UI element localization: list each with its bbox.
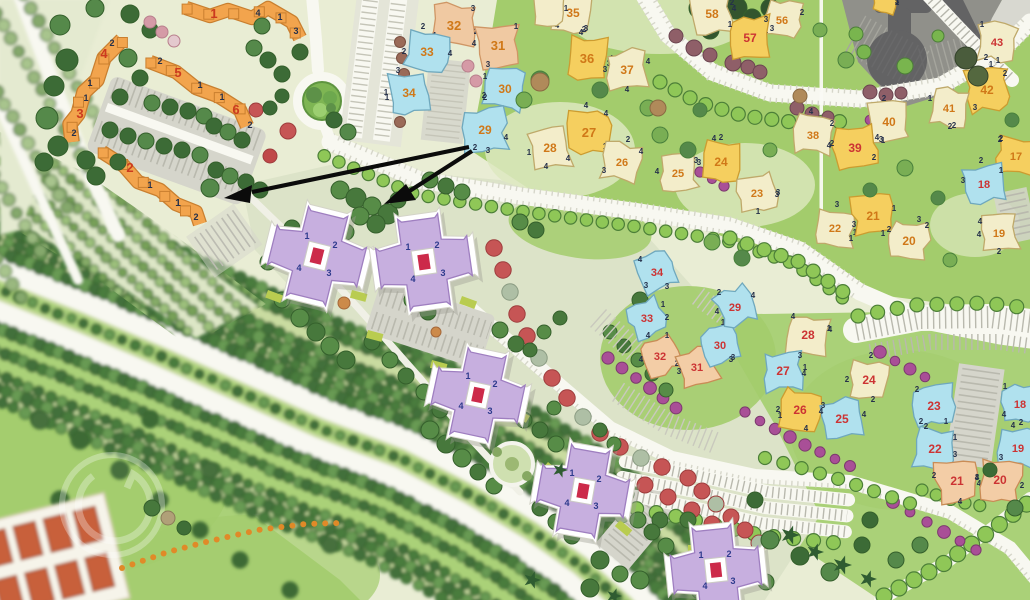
svg-text:2: 2 — [952, 121, 957, 130]
svg-text:36: 36 — [580, 51, 594, 66]
svg-text:4: 4 — [715, 307, 720, 316]
svg-text:3: 3 — [326, 268, 331, 278]
svg-text:3: 3 — [798, 351, 803, 360]
svg-text:3: 3 — [593, 501, 598, 511]
svg-text:1: 1 — [665, 331, 670, 340]
svg-text:32: 32 — [447, 18, 461, 33]
svg-text:1: 1 — [698, 550, 703, 560]
svg-text:43: 43 — [991, 37, 1003, 49]
svg-text:2: 2 — [421, 22, 426, 31]
svg-text:1: 1 — [527, 148, 532, 157]
svg-text:1: 1 — [385, 93, 390, 102]
svg-text:34: 34 — [402, 86, 416, 100]
svg-text:2: 2 — [845, 375, 850, 384]
svg-text:2: 2 — [247, 120, 252, 130]
svg-text:3: 3 — [697, 158, 702, 167]
svg-text:4: 4 — [978, 217, 983, 226]
svg-text:2: 2 — [882, 94, 887, 103]
svg-text:1: 1 — [569, 468, 574, 478]
svg-text:2: 2 — [925, 221, 930, 230]
svg-text:4: 4 — [504, 133, 509, 142]
svg-text:2: 2 — [998, 135, 1003, 144]
svg-text:2: 2 — [402, 47, 407, 56]
svg-text:3: 3 — [999, 453, 1004, 462]
svg-text:1: 1 — [210, 6, 217, 21]
svg-text:2: 2 — [193, 212, 198, 222]
svg-text:25: 25 — [672, 168, 684, 180]
svg-text:21: 21 — [950, 474, 964, 488]
svg-text:4: 4 — [448, 49, 453, 58]
svg-text:4: 4 — [564, 498, 569, 508]
svg-text:24: 24 — [862, 373, 876, 387]
svg-text:1: 1 — [827, 324, 832, 333]
svg-text:3: 3 — [895, 0, 900, 6]
svg-text:4: 4 — [655, 167, 660, 176]
svg-text:3: 3 — [677, 367, 682, 376]
svg-text:1: 1 — [175, 198, 181, 209]
svg-text:3: 3 — [730, 576, 735, 586]
svg-text:35: 35 — [566, 6, 580, 20]
svg-text:4: 4 — [809, 107, 814, 116]
svg-text:3: 3 — [471, 4, 476, 13]
svg-text:3: 3 — [487, 406, 492, 416]
svg-text:1: 1 — [778, 411, 783, 420]
svg-text:4: 4 — [639, 147, 644, 156]
svg-text:2: 2 — [109, 38, 114, 48]
svg-text:4: 4 — [472, 39, 477, 48]
svg-text:4: 4 — [410, 274, 415, 284]
svg-text:4: 4 — [875, 133, 880, 142]
svg-text:20: 20 — [902, 234, 916, 248]
svg-text:4: 4 — [638, 255, 643, 264]
svg-text:2: 2 — [932, 471, 937, 480]
svg-text:17: 17 — [1010, 151, 1022, 163]
svg-text:1: 1 — [881, 229, 886, 238]
svg-text:2: 2 — [1003, 69, 1008, 78]
svg-text:3: 3 — [961, 176, 966, 185]
svg-text:30: 30 — [498, 82, 512, 96]
svg-text:4: 4 — [804, 424, 809, 433]
svg-text:18: 18 — [1014, 399, 1026, 411]
svg-text:1: 1 — [197, 80, 202, 90]
svg-text:4: 4 — [802, 369, 807, 378]
svg-text:4: 4 — [791, 312, 796, 321]
svg-text:2: 2 — [979, 156, 984, 165]
svg-text:1: 1 — [756, 207, 761, 216]
svg-text:4: 4 — [566, 154, 571, 163]
svg-text:2: 2 — [1019, 418, 1024, 427]
svg-text:6: 6 — [232, 102, 239, 117]
svg-text:4: 4 — [604, 109, 609, 118]
svg-text:2: 2 — [332, 240, 337, 250]
svg-text:19: 19 — [1012, 443, 1024, 455]
svg-text:2: 2 — [434, 240, 439, 250]
svg-text:2: 2 — [872, 153, 877, 162]
svg-text:27: 27 — [776, 364, 790, 378]
svg-text:1: 1 — [87, 78, 92, 88]
svg-text:4: 4 — [255, 8, 260, 18]
svg-text:4: 4 — [751, 291, 756, 300]
svg-text:1: 1 — [999, 166, 1004, 175]
svg-text:1: 1 — [483, 72, 488, 81]
svg-text:1: 1 — [405, 242, 410, 252]
svg-text:3: 3 — [76, 106, 83, 121]
svg-text:1: 1 — [928, 94, 933, 103]
svg-text:34: 34 — [651, 267, 664, 279]
svg-text:31: 31 — [691, 362, 703, 374]
svg-text:4: 4 — [712, 134, 717, 143]
svg-text:3: 3 — [917, 215, 922, 224]
svg-text:3: 3 — [396, 66, 401, 75]
svg-text:3: 3 — [644, 281, 649, 290]
svg-text:21: 21 — [866, 209, 880, 223]
svg-text:1: 1 — [892, 204, 897, 213]
svg-text:18: 18 — [978, 179, 990, 191]
svg-text:38: 38 — [807, 130, 819, 142]
svg-text:3: 3 — [953, 450, 958, 459]
svg-text:1: 1 — [881, 136, 886, 145]
svg-text:41: 41 — [943, 103, 955, 115]
svg-text:4: 4 — [458, 401, 463, 411]
svg-text:4: 4 — [977, 230, 982, 239]
svg-text:56: 56 — [776, 15, 788, 27]
svg-text:1: 1 — [83, 93, 88, 103]
svg-text:33: 33 — [641, 313, 653, 325]
svg-text:4: 4 — [646, 331, 651, 340]
svg-text:37: 37 — [620, 63, 634, 77]
svg-text:2: 2 — [1020, 481, 1025, 490]
svg-text:2: 2 — [483, 93, 488, 102]
svg-text:1: 1 — [219, 92, 224, 102]
svg-text:30: 30 — [714, 340, 726, 352]
svg-text:29: 29 — [729, 302, 741, 314]
svg-text:1: 1 — [944, 417, 949, 426]
svg-text:2: 2 — [71, 128, 76, 138]
svg-text:57: 57 — [743, 31, 757, 45]
svg-text:26: 26 — [616, 157, 628, 169]
svg-text:2: 2 — [778, 0, 783, 1]
svg-text:1: 1 — [465, 371, 470, 381]
svg-text:4: 4 — [646, 57, 651, 66]
svg-text:2: 2 — [473, 143, 478, 152]
svg-text:3: 3 — [776, 188, 781, 197]
svg-text:33: 33 — [420, 45, 434, 59]
svg-text:2: 2 — [830, 119, 835, 128]
svg-text:3: 3 — [440, 268, 445, 278]
svg-text:2: 2 — [596, 474, 601, 484]
svg-text:4: 4 — [625, 85, 630, 94]
svg-text:4: 4 — [1002, 410, 1007, 419]
svg-text:5: 5 — [174, 65, 181, 80]
svg-text:1: 1 — [989, 60, 994, 69]
svg-text:22: 22 — [928, 442, 942, 456]
svg-text:2: 2 — [924, 422, 929, 431]
svg-text:1: 1 — [147, 180, 152, 190]
svg-text:23: 23 — [927, 399, 941, 413]
svg-text:2: 2 — [871, 395, 876, 404]
svg-text:2: 2 — [800, 8, 805, 17]
svg-text:2: 2 — [830, 139, 835, 148]
svg-text:4: 4 — [639, 355, 644, 364]
svg-text:40: 40 — [882, 115, 896, 129]
svg-text:4: 4 — [819, 407, 824, 416]
svg-text:4: 4 — [702, 581, 707, 591]
svg-text:23: 23 — [751, 188, 763, 200]
svg-text:3: 3 — [665, 282, 670, 291]
svg-text:1: 1 — [661, 300, 666, 309]
svg-text:3: 3 — [764, 15, 769, 24]
svg-text:3: 3 — [293, 26, 298, 36]
svg-text:1: 1 — [277, 12, 282, 22]
svg-text:3: 3 — [852, 220, 857, 229]
svg-text:1: 1 — [980, 20, 985, 29]
svg-text:28: 28 — [543, 141, 557, 155]
svg-text:29: 29 — [478, 123, 492, 137]
svg-text:22: 22 — [829, 223, 841, 235]
svg-text:27: 27 — [582, 125, 596, 140]
svg-text:4: 4 — [296, 263, 301, 273]
svg-text:1: 1 — [728, 20, 733, 29]
svg-text:1: 1 — [953, 433, 958, 442]
svg-text:32: 32 — [654, 351, 666, 363]
svg-text:3: 3 — [729, 355, 734, 364]
svg-text:2: 2 — [869, 351, 874, 360]
svg-text:2: 2 — [626, 135, 631, 144]
svg-text:1: 1 — [849, 234, 854, 243]
svg-text:24: 24 — [714, 155, 728, 169]
svg-text:2: 2 — [915, 385, 920, 394]
svg-text:4: 4 — [862, 410, 867, 419]
svg-text:1: 1 — [1003, 382, 1008, 391]
svg-text:4: 4 — [958, 497, 963, 506]
svg-text:2: 2 — [717, 288, 722, 297]
svg-text:2: 2 — [887, 225, 892, 234]
svg-text:3: 3 — [975, 473, 980, 482]
svg-text:2: 2 — [157, 56, 162, 66]
svg-text:1: 1 — [514, 22, 519, 31]
svg-text:2: 2 — [126, 160, 133, 175]
svg-text:3: 3 — [602, 166, 607, 175]
svg-text:28: 28 — [801, 328, 815, 342]
svg-text:4: 4 — [1011, 421, 1016, 430]
svg-text:1: 1 — [304, 231, 309, 241]
svg-text:2: 2 — [665, 313, 670, 322]
svg-text:3: 3 — [973, 103, 978, 112]
svg-text:1: 1 — [996, 56, 1001, 65]
svg-text:4: 4 — [579, 28, 584, 37]
svg-text:19: 19 — [993, 228, 1005, 240]
svg-text:3: 3 — [603, 65, 608, 74]
svg-text:58: 58 — [705, 7, 719, 21]
svg-text:2: 2 — [726, 549, 731, 559]
svg-text:26: 26 — [793, 403, 807, 417]
svg-text:3: 3 — [835, 200, 840, 209]
svg-text:31: 31 — [491, 38, 505, 53]
svg-text:3: 3 — [770, 24, 775, 33]
svg-text:2: 2 — [719, 133, 724, 142]
svg-text:4: 4 — [584, 101, 589, 110]
svg-text:25: 25 — [835, 412, 849, 426]
svg-text:4: 4 — [100, 46, 108, 61]
svg-text:3: 3 — [486, 146, 491, 155]
svg-text:2: 2 — [997, 247, 1002, 256]
svg-text:2: 2 — [730, 0, 735, 7]
svg-text:1: 1 — [564, 4, 569, 13]
svg-text:39: 39 — [848, 141, 862, 155]
svg-text:4: 4 — [544, 162, 549, 171]
svg-text:2: 2 — [492, 379, 497, 389]
